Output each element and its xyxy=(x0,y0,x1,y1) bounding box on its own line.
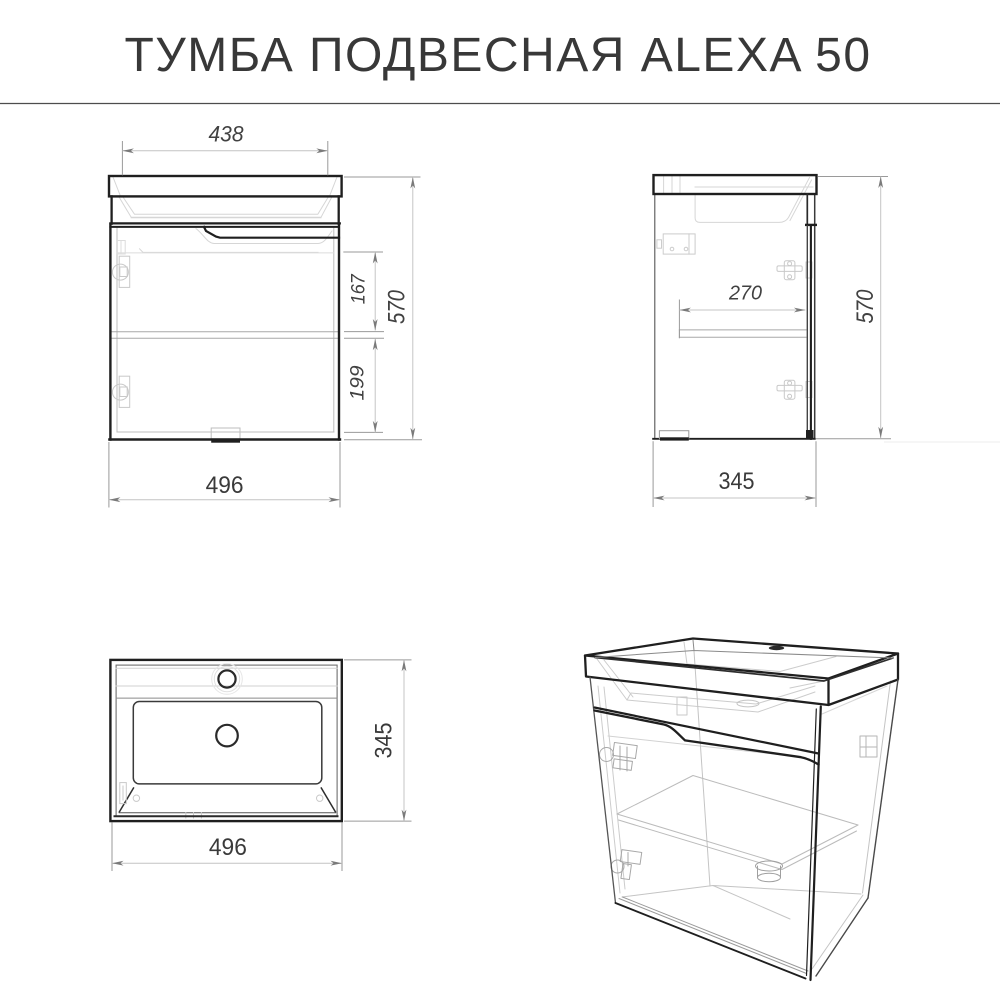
svg-text:345: 345 xyxy=(371,723,398,759)
svg-text:496: 496 xyxy=(209,834,247,861)
svg-text:438: 438 xyxy=(209,122,245,147)
svg-text:270: 270 xyxy=(728,283,762,305)
svg-text:199: 199 xyxy=(347,365,369,400)
svg-text:496: 496 xyxy=(206,472,244,499)
svg-text:570: 570 xyxy=(384,290,411,324)
svg-text:570: 570 xyxy=(852,289,879,323)
svg-text:167: 167 xyxy=(347,273,369,304)
svg-text:ТУМБА ПОДВЕСНАЯ ALEXA 50: ТУМБА ПОДВЕСНАЯ ALEXA 50 xyxy=(124,29,871,82)
svg-text:345: 345 xyxy=(719,468,755,495)
